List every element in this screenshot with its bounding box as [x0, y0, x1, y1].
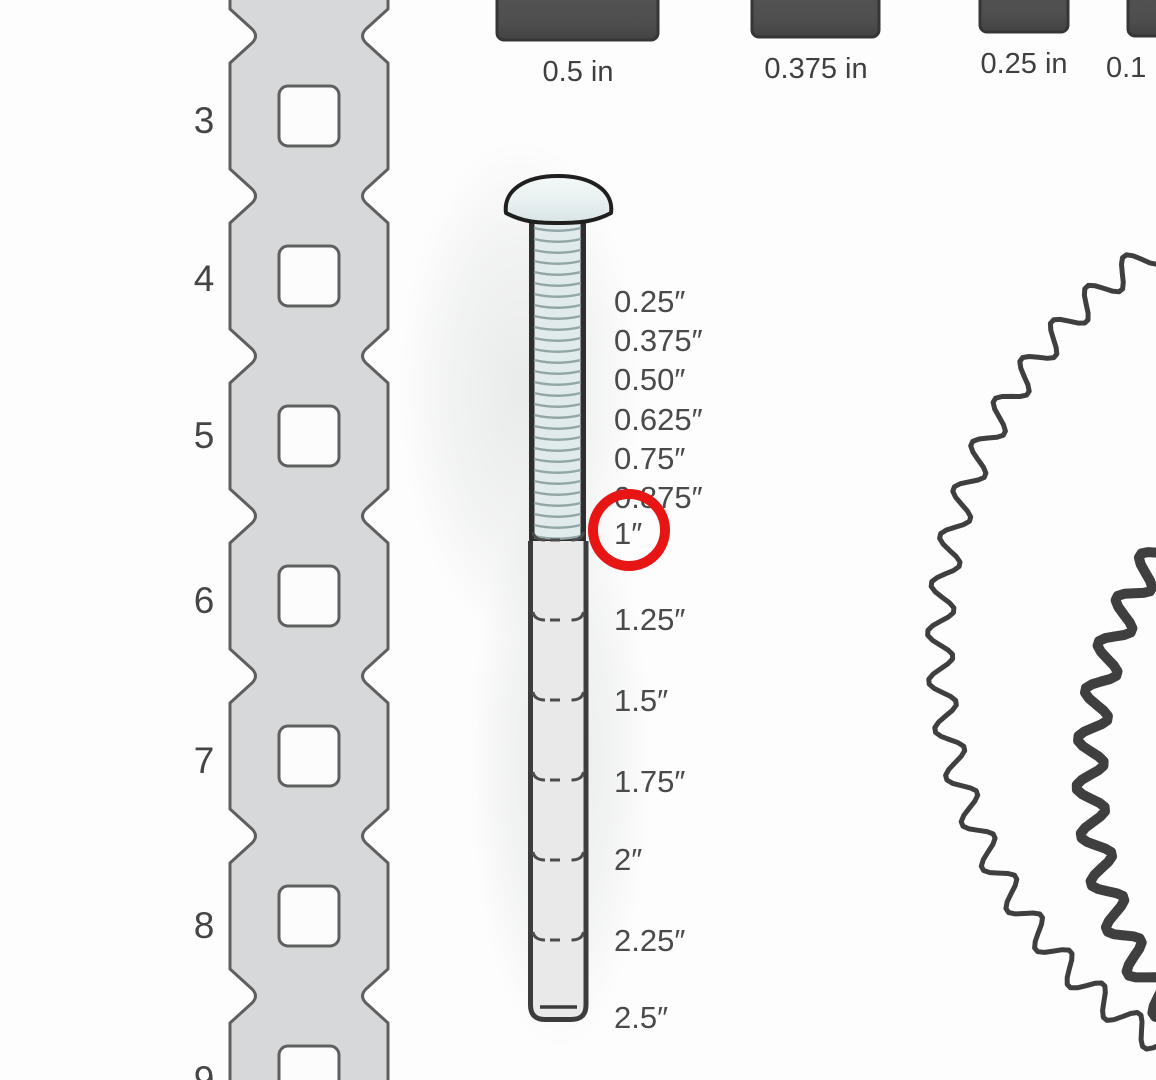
- strip-hole: [279, 566, 339, 626]
- strip-hole: [279, 86, 339, 146]
- size-bar-0.375in-label: 0.375 in: [764, 53, 867, 85]
- length-label-0.625in: 0.625″: [614, 402, 703, 437]
- strip-hole: [279, 246, 339, 306]
- size-bar-0.125in-label: 0.1: [1106, 52, 1146, 84]
- strip-hole: [279, 406, 339, 466]
- size-bar-0.5in-shape: [497, 0, 658, 40]
- length-label-0.50in: 0.50″: [614, 362, 685, 397]
- screw-head: [506, 176, 612, 223]
- length-label-2.5in: 2.5″: [614, 1000, 668, 1035]
- length-label-0.25in: 0.25″: [614, 284, 685, 319]
- strip-number-5: 5: [194, 415, 215, 456]
- strip-hole: [279, 1046, 339, 1080]
- size-bar-0.25in-shape: [980, 0, 1068, 32]
- strip-number-8: 8: [194, 905, 215, 946]
- diagram-svg: 3 4 5 6 7 8 9 0.5 in 0.375 in 0.25 in 0.…: [0, 0, 1156, 1080]
- strip-hole: [279, 886, 339, 946]
- length-label-2in: 2″: [614, 842, 642, 877]
- length-label-2.25in: 2.25″: [614, 923, 685, 958]
- length-label-1.75in: 1.75″: [614, 764, 685, 799]
- length-label-1in: 1″: [614, 516, 642, 551]
- strip-hole: [279, 726, 339, 786]
- size-bar-0.5in-label: 0.5 in: [543, 56, 614, 88]
- screw-size-diagram: 3 4 5 6 7 8 9 0.5 in 0.375 in 0.25 in 0.…: [0, 0, 1156, 1080]
- strip-number-9: 9: [194, 1059, 215, 1080]
- strip-number-7: 7: [194, 740, 215, 781]
- strip-number-6: 6: [194, 580, 215, 621]
- length-label-1.5in: 1.5″: [614, 683, 668, 718]
- length-label-1.25in: 1.25″: [614, 602, 685, 637]
- hole-strip: [230, 0, 388, 1080]
- length-label-0.75in: 0.75″: [614, 441, 685, 476]
- size-bar-0.375in-shape: [752, 0, 879, 37]
- screw-thread-body: [535, 219, 581, 539]
- size-bar-0.25in-label: 0.25 in: [980, 48, 1067, 80]
- strip-number-3: 3: [194, 100, 215, 141]
- length-label-0.375in: 0.375″: [614, 323, 703, 358]
- size-bar-0.125in-shape: [1128, 0, 1156, 36]
- strip-number-4: 4: [194, 258, 215, 299]
